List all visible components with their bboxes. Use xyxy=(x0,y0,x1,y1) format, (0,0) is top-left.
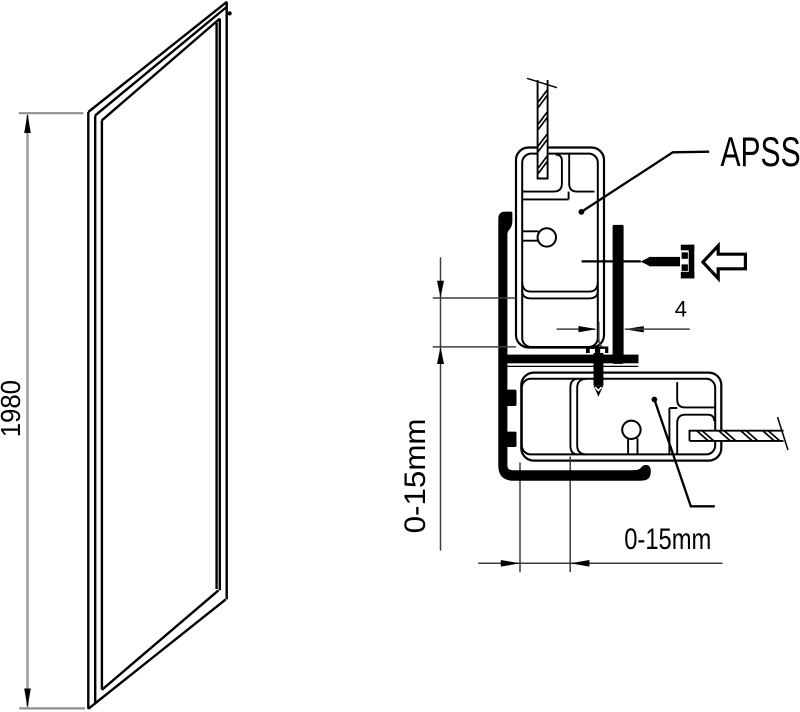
svg-text:0-15mm: 0-15mm xyxy=(624,522,711,555)
svg-text:0-15mm: 0-15mm xyxy=(398,418,432,533)
svg-text:4: 4 xyxy=(675,296,687,321)
svg-text:1980: 1980 xyxy=(0,380,26,437)
svg-text:APSS: APSS xyxy=(721,128,800,175)
